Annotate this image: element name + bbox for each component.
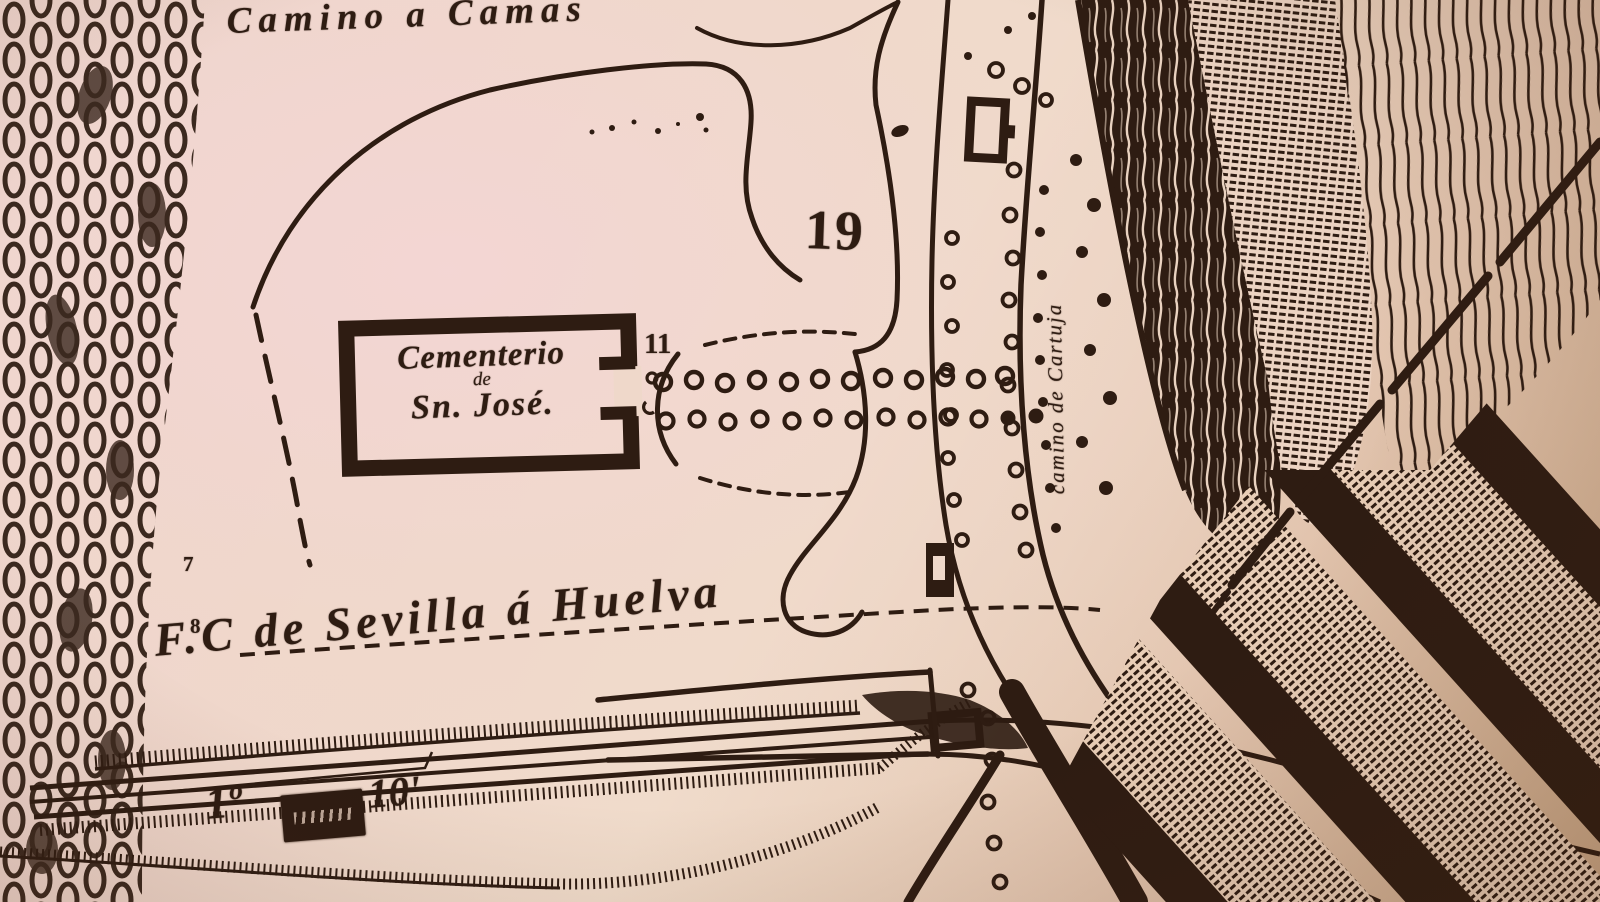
mark-7: 7 bbox=[183, 552, 194, 577]
historical-map-photo: Camino a Camas 19 11 Cementerio de Sn. J… bbox=[0, 0, 1600, 902]
km-marker-right-label: 10' bbox=[366, 765, 422, 817]
riverside-trees bbox=[590, 12, 1118, 557]
cemetery-name-label: Cementerio de Sn. José. bbox=[367, 334, 598, 429]
km-marker-left-label: 1º bbox=[203, 775, 243, 830]
gate-number-label: 11 bbox=[644, 328, 671, 361]
plot-number-label: 19 bbox=[804, 198, 866, 264]
tree-avenue bbox=[655, 368, 1044, 430]
south-fields bbox=[598, 670, 1135, 902]
mark-8: 8 bbox=[190, 614, 201, 639]
km-marker-box bbox=[280, 789, 366, 843]
road-label-cartuja: camino de Cartuja bbox=[1041, 258, 1071, 538]
cemetery-name-line3: Sn. José. bbox=[368, 383, 597, 429]
map-artwork bbox=[0, 0, 1600, 902]
